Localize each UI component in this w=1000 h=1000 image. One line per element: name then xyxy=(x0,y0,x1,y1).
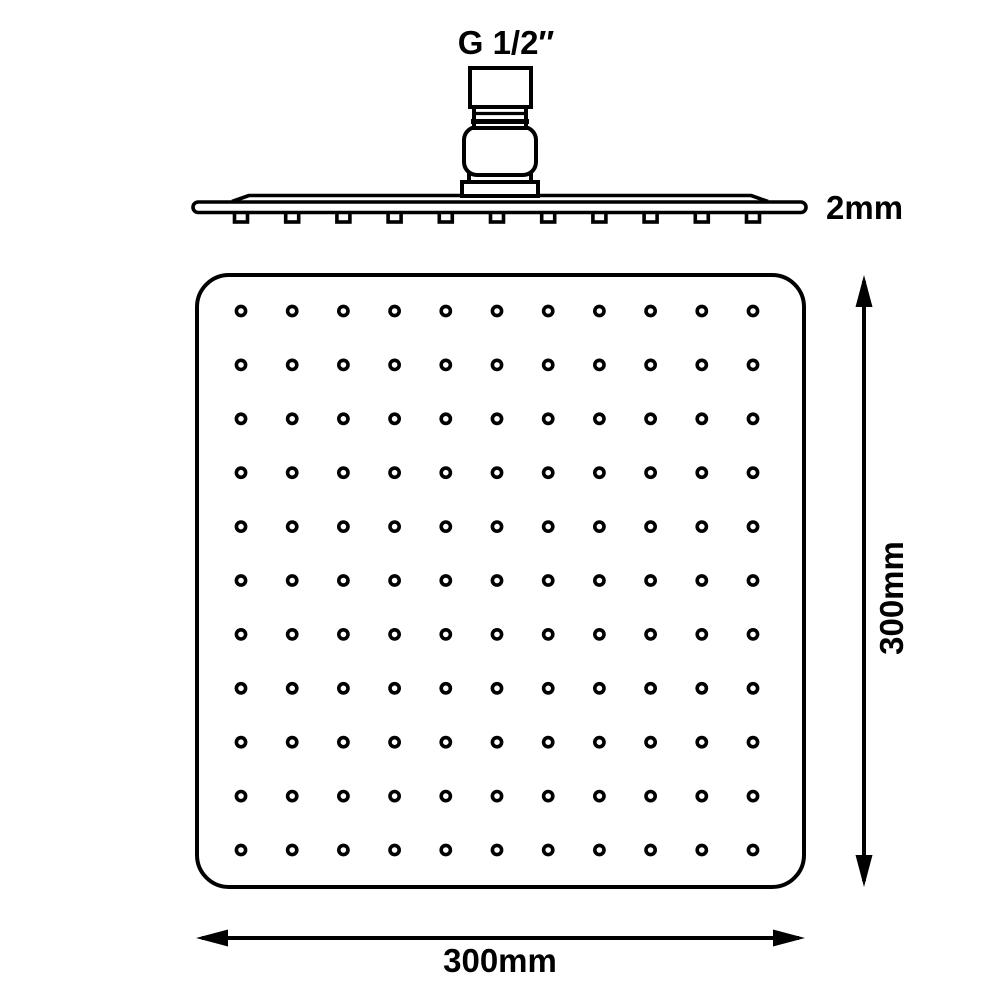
nozzle-hole xyxy=(697,306,706,315)
nozzle-hole xyxy=(390,576,399,585)
nozzle-hole xyxy=(595,576,604,585)
nozzle-hole xyxy=(492,306,501,315)
nozzle-hole xyxy=(339,684,348,693)
nozzle-hole xyxy=(697,684,706,693)
nozzle-hole xyxy=(288,684,297,693)
nozzle-hole xyxy=(390,792,399,801)
side-plate-edge xyxy=(193,202,806,213)
nozzle-hole xyxy=(646,414,655,423)
nozzle-hole xyxy=(748,414,757,423)
nozzle-hole xyxy=(339,792,348,801)
nozzle-hole xyxy=(441,792,450,801)
front-view xyxy=(197,275,804,887)
arrowhead-down-icon xyxy=(856,855,873,887)
thread-connector xyxy=(462,68,538,196)
thread-size-label: G 1/2″ xyxy=(458,24,555,61)
nozzle-hole xyxy=(595,630,604,639)
nozzle-hole xyxy=(748,738,757,747)
nozzle-hole xyxy=(288,576,297,585)
nozzle-hole xyxy=(748,306,757,315)
nozzle-hole xyxy=(441,845,450,854)
nozzle-hole xyxy=(544,360,553,369)
height-dimension-label: 300mm xyxy=(873,541,910,655)
nozzle-hole xyxy=(390,414,399,423)
nozzle-hole xyxy=(441,630,450,639)
nozzle-hole xyxy=(236,738,245,747)
nozzle-hole xyxy=(544,522,553,531)
nozzle-hole xyxy=(441,738,450,747)
nozzle-hole xyxy=(339,522,348,531)
diagram-svg: G 1/2″ 2mm 300mm 300mm xyxy=(0,0,1000,1000)
nozzle-hole xyxy=(492,845,501,854)
nozzle-hole xyxy=(236,576,245,585)
nozzle-hole xyxy=(646,306,655,315)
nozzle-hole xyxy=(236,306,245,315)
nozzle-hole xyxy=(544,306,553,315)
nozzle-hole xyxy=(288,522,297,531)
nozzle-hole xyxy=(339,414,348,423)
nozzle-hole xyxy=(236,414,245,423)
nozzle-hole xyxy=(544,468,553,477)
nozzle-hole xyxy=(390,468,399,477)
nozzle-hole xyxy=(646,792,655,801)
nozzle-hole xyxy=(339,468,348,477)
nozzle-hole xyxy=(492,360,501,369)
connector-thread-pipe xyxy=(470,68,531,107)
nozzle-hole xyxy=(544,738,553,747)
nozzle-hole xyxy=(646,684,655,693)
nozzle-hole xyxy=(288,414,297,423)
height-dimension-arrow xyxy=(856,275,873,887)
nozzle-hole xyxy=(288,738,297,747)
nozzle-hole xyxy=(236,845,245,854)
shower-head-technical-drawing: G 1/2″ 2mm 300mm 300mm xyxy=(0,0,1000,1000)
nozzle-hole xyxy=(544,630,553,639)
nozzle-hole xyxy=(697,468,706,477)
nozzle-hole xyxy=(646,468,655,477)
nozzle-hole xyxy=(339,576,348,585)
nozzle-hole xyxy=(441,306,450,315)
nozzle-hole xyxy=(595,306,604,315)
nozzle-hole xyxy=(697,792,706,801)
nozzle-hole xyxy=(595,792,604,801)
nozzle-hole xyxy=(595,684,604,693)
nozzle-hole xyxy=(492,414,501,423)
nozzle-hole xyxy=(441,576,450,585)
nozzle-hole xyxy=(748,684,757,693)
nozzle-hole xyxy=(339,845,348,854)
nozzle-hole xyxy=(697,522,706,531)
nozzle-hole xyxy=(492,576,501,585)
nozzle-hole xyxy=(748,522,757,531)
nozzle-hole xyxy=(595,845,604,854)
nozzle-hole xyxy=(390,630,399,639)
nozzle-hole xyxy=(748,576,757,585)
arrowhead-left-icon xyxy=(196,930,228,947)
nozzle-hole xyxy=(697,845,706,854)
nozzle-hole xyxy=(390,845,399,854)
nozzle-hole xyxy=(236,792,245,801)
width-dimension-label: 300mm xyxy=(443,942,557,979)
connector-neck xyxy=(474,106,526,128)
nozzle-hole xyxy=(646,738,655,747)
nozzle-hole xyxy=(646,845,655,854)
nozzle-hole xyxy=(441,360,450,369)
nozzle-hole xyxy=(697,576,706,585)
nozzle-hole xyxy=(236,522,245,531)
nozzle-hole xyxy=(492,468,501,477)
nozzle-hole xyxy=(544,684,553,693)
nozzle-hole xyxy=(492,522,501,531)
nozzle-hole xyxy=(646,630,655,639)
nozzle-hole xyxy=(697,738,706,747)
nozzle-hole xyxy=(236,468,245,477)
nozzle-hole xyxy=(544,576,553,585)
nozzle-hole xyxy=(390,522,399,531)
nozzle-hole xyxy=(339,306,348,315)
nozzle-hole xyxy=(748,468,757,477)
arrowhead-right-icon xyxy=(773,930,805,947)
nozzle-hole xyxy=(390,684,399,693)
nozzle-hole xyxy=(748,360,757,369)
nozzle-hole xyxy=(595,414,604,423)
nozzle-hole xyxy=(748,845,757,854)
nozzle-hole xyxy=(646,360,655,369)
nozzle-hole xyxy=(390,306,399,315)
nozzle-hole xyxy=(441,414,450,423)
nozzle-hole xyxy=(492,684,501,693)
nozzle-hole xyxy=(595,360,604,369)
side-view xyxy=(193,196,806,223)
nozzle-hole xyxy=(544,792,553,801)
nozzle-hole xyxy=(697,630,706,639)
nozzle-hole xyxy=(288,468,297,477)
nozzle-hole xyxy=(697,360,706,369)
nozzle-hole xyxy=(544,414,553,423)
nozzle-hole xyxy=(288,792,297,801)
nozzle-hole xyxy=(544,845,553,854)
thickness-label: 2mm xyxy=(826,189,903,226)
nozzle-hole xyxy=(441,684,450,693)
nozzle-hole xyxy=(697,414,706,423)
connector-body xyxy=(464,127,536,175)
nozzle-hole xyxy=(646,576,655,585)
nozzle-hole xyxy=(595,468,604,477)
connector-base-plate xyxy=(462,182,538,196)
nozzle-hole xyxy=(595,522,604,531)
nozzle-hole xyxy=(339,360,348,369)
nozzle-hole xyxy=(236,630,245,639)
nozzle-hole xyxy=(288,360,297,369)
nozzle-hole xyxy=(236,360,245,369)
nozzle-hole xyxy=(492,792,501,801)
nozzle-hole xyxy=(390,738,399,747)
nozzle-hole xyxy=(492,630,501,639)
arrowhead-up-icon xyxy=(856,275,873,307)
nozzle-hole xyxy=(748,792,757,801)
nozzle-hole xyxy=(748,630,757,639)
nozzle-hole xyxy=(441,522,450,531)
nozzle-hole xyxy=(390,360,399,369)
nozzle-hole xyxy=(339,738,348,747)
nozzle-hole xyxy=(492,738,501,747)
nozzle-hole xyxy=(288,306,297,315)
nozzle-hole xyxy=(339,630,348,639)
nozzle-hole xyxy=(595,738,604,747)
nozzle-hole xyxy=(646,522,655,531)
nozzle-hole xyxy=(288,845,297,854)
nozzle-hole xyxy=(441,468,450,477)
nozzle-hole xyxy=(288,630,297,639)
nozzle-hole xyxy=(236,684,245,693)
